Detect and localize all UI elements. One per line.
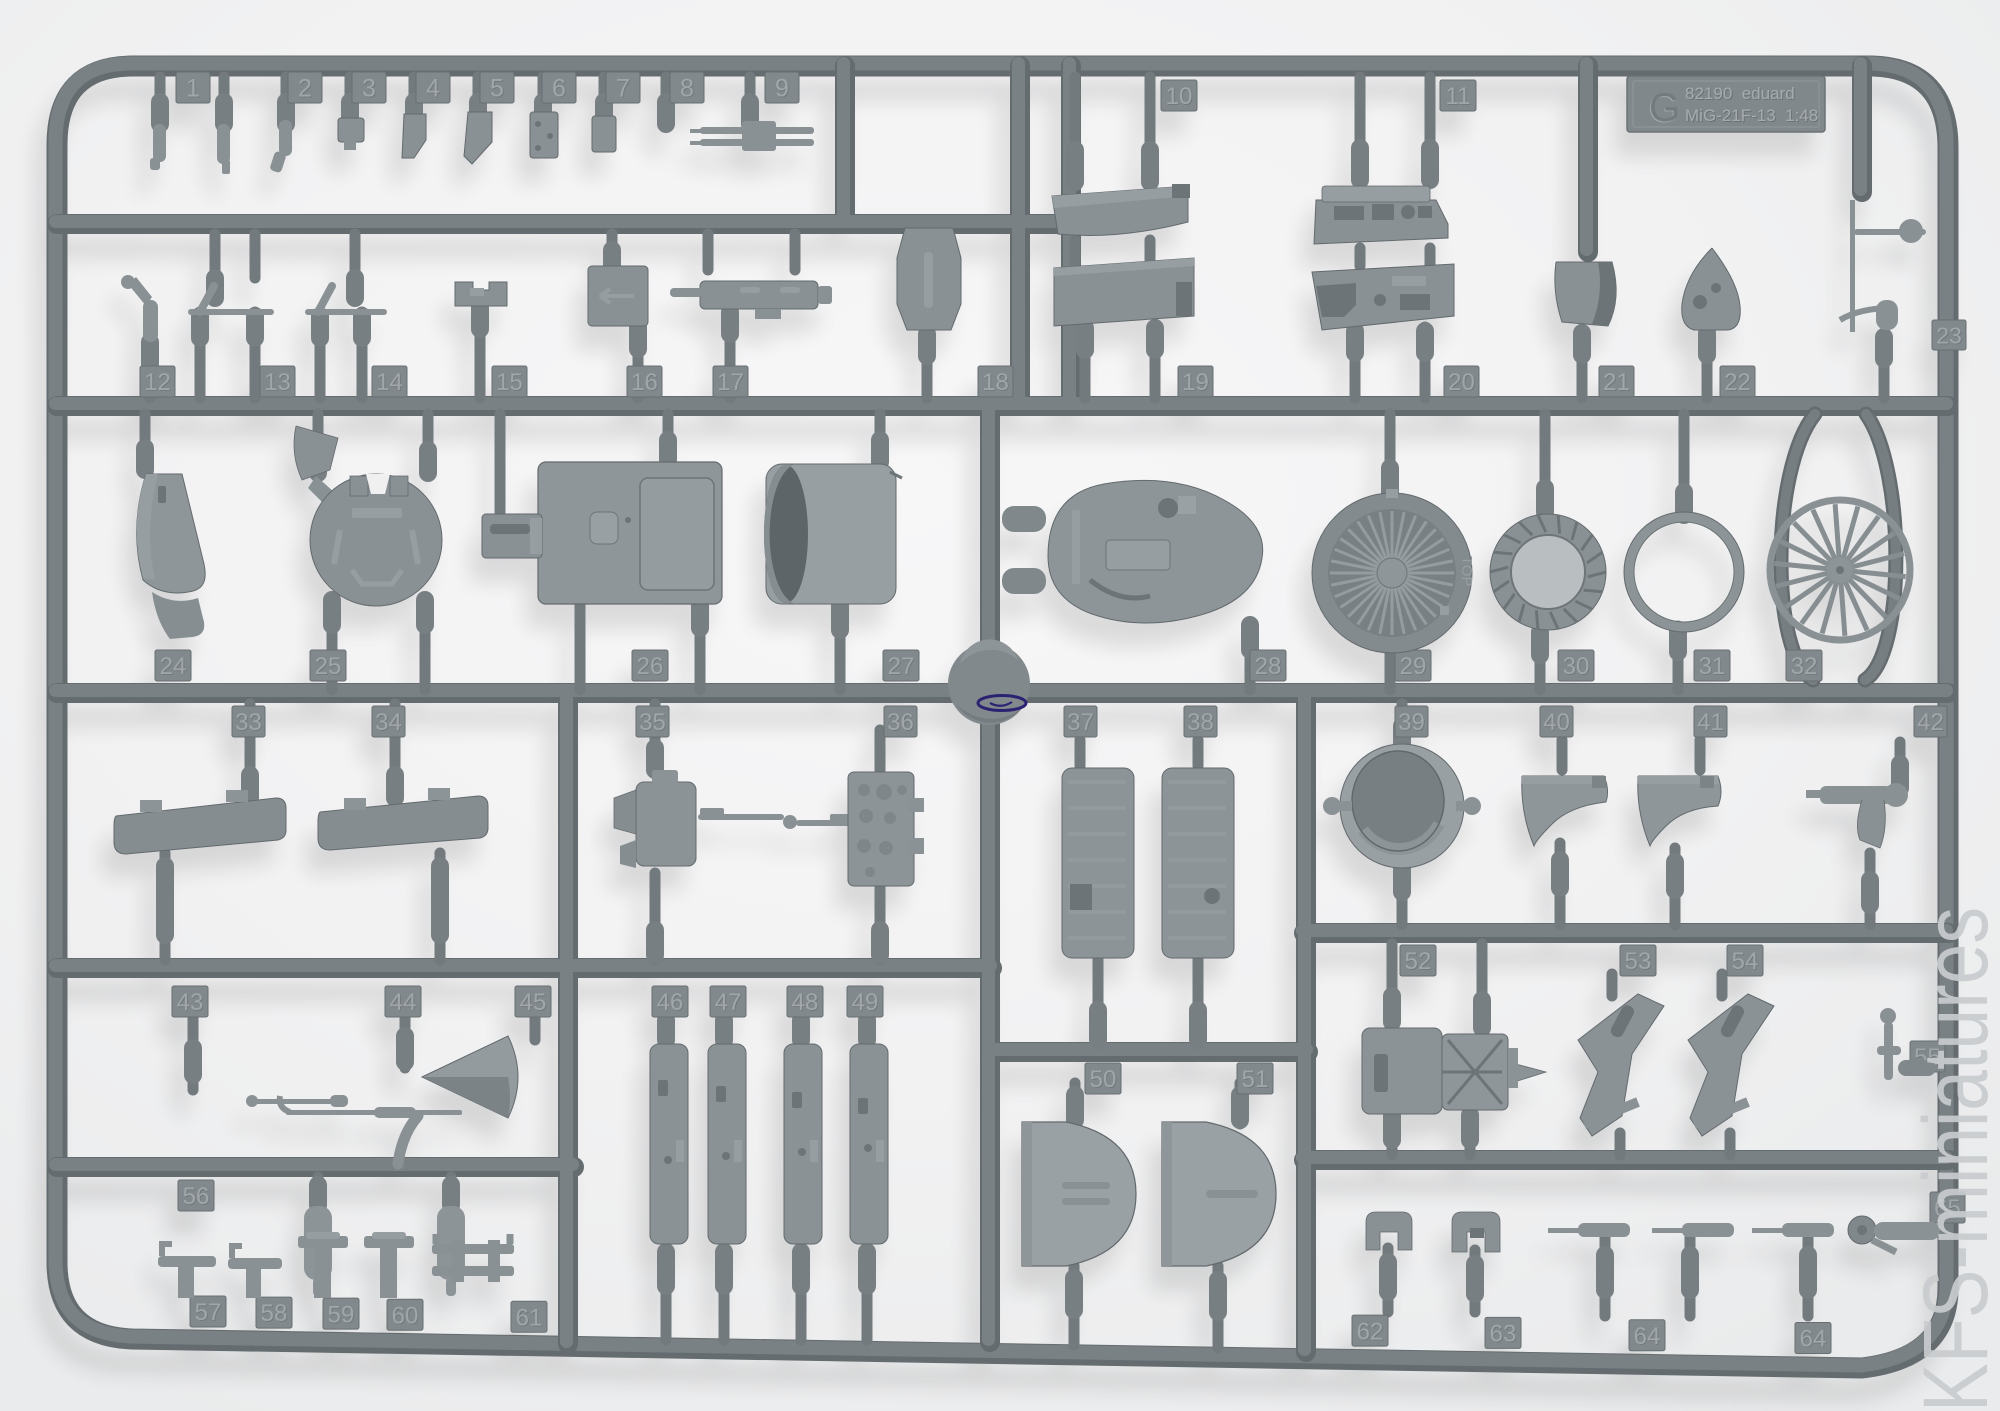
svg-text:34: 34 <box>375 709 402 736</box>
svg-text:64: 64 <box>1800 1326 1827 1353</box>
svg-text:TOP: TOP <box>1458 556 1475 587</box>
svg-text:10: 10 <box>1166 83 1193 110</box>
svg-text:7: 7 <box>616 75 630 103</box>
svg-text:6: 6 <box>552 75 566 103</box>
svg-text:33: 33 <box>235 709 262 736</box>
svg-text:49: 49 <box>852 989 879 1016</box>
svg-text:30: 30 <box>1563 653 1590 680</box>
svg-text:G: G <box>1649 86 1680 130</box>
svg-text:43: 43 <box>177 989 204 1016</box>
svg-text:48: 48 <box>792 989 819 1016</box>
svg-text:38: 38 <box>1187 709 1214 736</box>
svg-text:51: 51 <box>1242 1066 1269 1093</box>
svg-text:42: 42 <box>1917 709 1944 736</box>
svg-text:56: 56 <box>183 1183 210 1210</box>
svg-text:16: 16 <box>631 369 658 396</box>
svg-text:63: 63 <box>1490 1320 1517 1347</box>
svg-text:40: 40 <box>1543 709 1570 736</box>
svg-text:37: 37 <box>1067 709 1094 736</box>
svg-text:54: 54 <box>1732 948 1759 975</box>
svg-text:50: 50 <box>1090 1066 1117 1093</box>
svg-text:57: 57 <box>195 1299 222 1326</box>
svg-text:24: 24 <box>160 653 187 680</box>
svg-text:3: 3 <box>362 75 376 103</box>
svg-text:26: 26 <box>637 653 664 680</box>
svg-text:28: 28 <box>1255 653 1282 680</box>
svg-text:64: 64 <box>1634 1323 1661 1350</box>
svg-text:15: 15 <box>496 369 523 396</box>
svg-text:46: 46 <box>657 989 684 1016</box>
svg-text:MiG-21F-13 1:48: MiG-21F-13 1:48 <box>1685 106 1818 125</box>
svg-text:41: 41 <box>1697 709 1724 736</box>
svg-text:53: 53 <box>1625 948 1652 975</box>
svg-text:22: 22 <box>1724 369 1751 396</box>
svg-text:14: 14 <box>376 369 403 396</box>
svg-text:18: 18 <box>982 369 1009 396</box>
svg-text:60: 60 <box>392 1302 419 1329</box>
svg-text:KFS-miniatures: KFS-miniatures <box>1905 907 2000 1411</box>
svg-text:59: 59 <box>328 1301 355 1328</box>
svg-text:58: 58 <box>261 1300 288 1327</box>
svg-text:36: 36 <box>887 709 914 736</box>
svg-text:13: 13 <box>264 369 291 396</box>
svg-text:27: 27 <box>888 653 915 680</box>
svg-text:8: 8 <box>680 75 694 103</box>
svg-text:39: 39 <box>1398 709 1425 736</box>
svg-text:47: 47 <box>715 989 742 1016</box>
svg-text:2: 2 <box>298 75 312 103</box>
svg-text:52: 52 <box>1405 948 1432 975</box>
svg-text:62: 62 <box>1357 1318 1384 1345</box>
svg-text:61: 61 <box>516 1304 543 1331</box>
svg-text:31: 31 <box>1699 653 1726 680</box>
svg-text:35: 35 <box>639 709 666 736</box>
svg-text:20: 20 <box>1448 369 1475 396</box>
svg-text:12: 12 <box>144 369 171 396</box>
svg-text:23: 23 <box>1936 322 1962 348</box>
svg-text:1: 1 <box>186 75 200 103</box>
svg-text:5: 5 <box>490 75 504 103</box>
svg-text:21: 21 <box>1603 369 1630 396</box>
svg-text:19: 19 <box>1182 369 1209 396</box>
svg-text:25: 25 <box>315 653 342 680</box>
svg-text:9: 9 <box>775 75 789 103</box>
svg-text:29: 29 <box>1400 653 1427 680</box>
svg-text:4: 4 <box>426 75 440 103</box>
svg-text:11: 11 <box>1446 83 1471 110</box>
svg-text:44: 44 <box>390 989 417 1016</box>
svg-text:82190 eduard: 82190 eduard <box>1685 84 1795 103</box>
svg-text:45: 45 <box>520 989 547 1016</box>
svg-text:32: 32 <box>1791 653 1818 680</box>
svg-text:17: 17 <box>717 369 744 396</box>
